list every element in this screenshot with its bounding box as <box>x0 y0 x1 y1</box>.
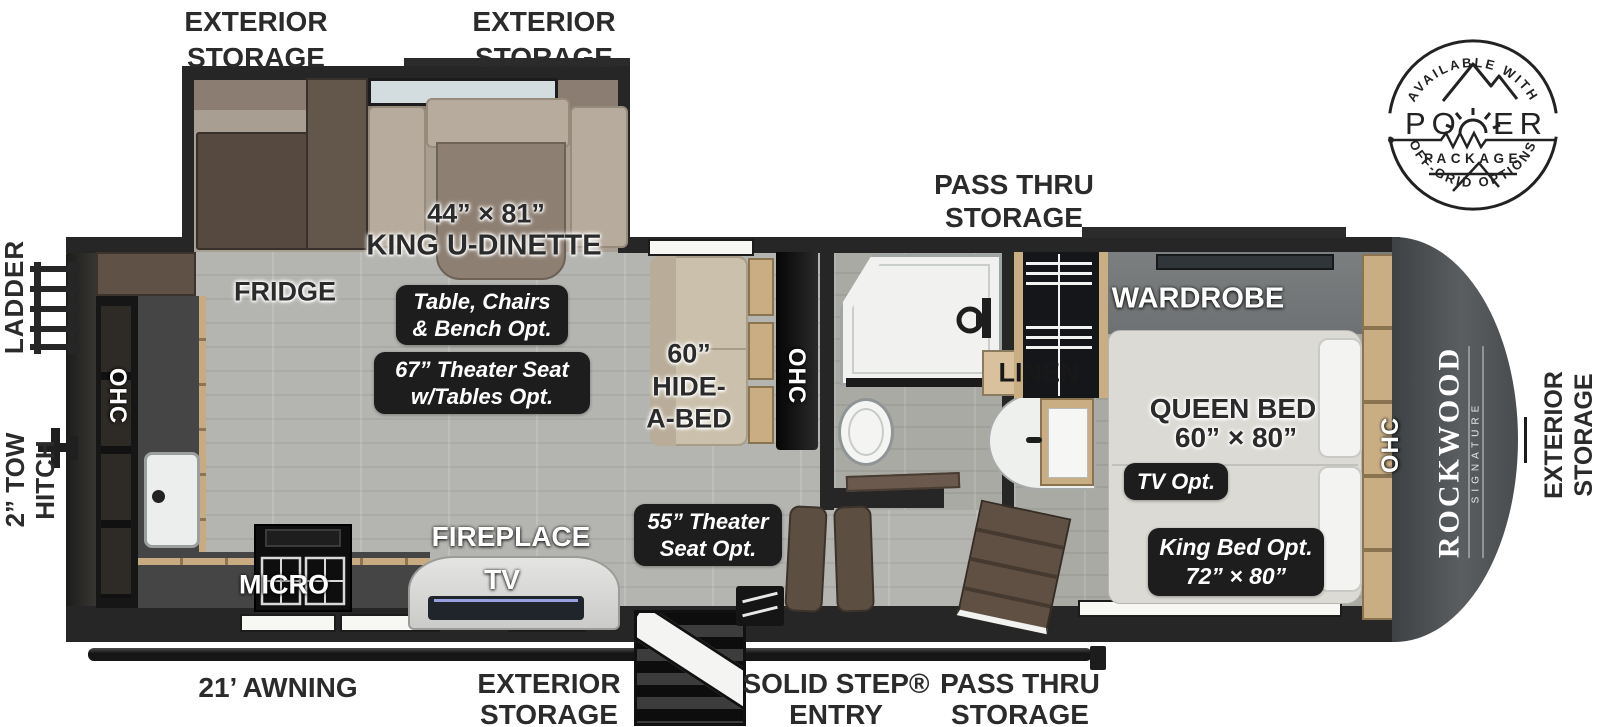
dinette-seat-right <box>570 106 628 248</box>
awning-label: 21’ AWNING <box>198 672 357 704</box>
fridge-cabinet <box>196 132 308 250</box>
wardrobe-rod-5 <box>1026 336 1092 339</box>
pillow-2 <box>1318 466 1362 592</box>
badge-line: & Bench Opt. <box>396 315 568 343</box>
badge-word-suffix: ER <box>1493 106 1548 141</box>
label-line: EXTERIOR <box>477 668 620 699</box>
sofa-end-cabinet-1 <box>748 258 774 316</box>
micro-label: MICRO <box>239 570 329 601</box>
shower-head-icon <box>952 296 996 348</box>
label-line: PASS THRU <box>934 168 1094 201</box>
top-wall-left <box>66 237 196 253</box>
option-badge-theater-55: 55” Theater Seat Opt. <box>634 504 782 566</box>
wardrobe-label: WARDROBE <box>1112 283 1284 316</box>
sofa-end-cabinet-2 <box>748 322 774 380</box>
window-sofa <box>648 239 754 256</box>
dinette-seat-left <box>368 106 426 248</box>
exterior-storage-top-left-label: EXTERIOR STORAGE <box>184 4 327 76</box>
label-line: STORAGE <box>934 201 1094 234</box>
label-line: STORAGE <box>472 40 615 76</box>
bedroom-skylight <box>1156 254 1334 270</box>
badge-arc-top: AVAILABLE WITH <box>1404 55 1542 105</box>
label-line: SOLID STEP® <box>742 668 929 699</box>
queen-bed-label-1: QUEEN BED <box>1150 393 1316 425</box>
badge-line: TV Opt. <box>1124 468 1228 496</box>
exterior-storage-bottom-label: EXTERIOR STORAGE <box>477 668 620 727</box>
label-line: EXTERIOR <box>184 4 327 40</box>
wardrobe-side-right <box>1099 252 1108 398</box>
front-cap-brand: ROCKWOOD SIGNATURE <box>1433 346 1484 558</box>
faucet-icon <box>152 490 165 503</box>
bed-slide-flange <box>1082 227 1346 238</box>
interior-entry-step <box>736 586 784 626</box>
badge-line: 72” × 80” <box>1148 562 1324 591</box>
brand-name: ROCKWOOD <box>1433 346 1467 558</box>
label-line: STORAGE <box>940 699 1100 727</box>
chair-2 <box>833 505 875 612</box>
badge-line: w/Tables Opt. <box>374 383 590 411</box>
badge-package-word: PACKAGE <box>1424 151 1522 166</box>
wardrobe-rod-4 <box>1026 326 1092 329</box>
ohc-bedroom-label: OHC <box>1377 417 1405 473</box>
bath-wall-left <box>820 252 834 510</box>
chair-1 <box>784 505 827 613</box>
kitchen-corner-cabinet <box>96 252 196 296</box>
label-line: ENTRY <box>742 699 929 727</box>
pantry-cabinet <box>306 78 368 250</box>
hide-a-bed-label-2: HIDE- <box>652 371 726 402</box>
cap-storage-door-mark <box>1524 417 1527 463</box>
badge-word-prefix: PO <box>1405 106 1462 141</box>
dinette-slide-wall-left <box>182 66 194 252</box>
label-line: PASS THRU <box>940 668 1100 699</box>
option-badge-tv: TV Opt. <box>1124 463 1228 500</box>
exterior-storage-right-label: EXTERIOR STORAGE <box>1539 371 1599 499</box>
dinette-name-label: KING U-DINETTE <box>366 229 601 262</box>
window-kitchen-1 <box>240 614 336 632</box>
vanity-faucet-icon <box>1026 437 1042 443</box>
ohc-kitchen-label: OHC <box>103 368 131 424</box>
badge-line: Table, Chairs <box>396 288 568 316</box>
label-line: HITCH <box>31 433 61 528</box>
entry-steps-icon <box>634 610 746 726</box>
hide-a-bed-label-3: A-BED <box>646 403 732 434</box>
badge-line: 67” Theater Seat <box>374 356 590 384</box>
dinette-size-label: 44” × 81” <box>427 198 545 229</box>
wardrobe-rod-2 <box>1026 272 1092 275</box>
shower-door <box>846 378 986 387</box>
vanity-basin <box>1048 408 1088 478</box>
ladder-label: LADDER <box>0 240 30 354</box>
label-line: STORAGE <box>184 40 327 76</box>
option-badge-table-chairs: Table, Chairs & Bench Opt. <box>396 285 568 345</box>
wardrobe-rod-3 <box>1026 282 1092 285</box>
hide-a-bed-label-1: 60” <box>667 338 711 369</box>
pass-thru-storage-top-label: PASS THRU STORAGE <box>934 168 1094 234</box>
wardrobe-rod-1 <box>1026 262 1092 265</box>
pillow-1 <box>1318 338 1362 458</box>
queen-bed-label-2: 60” × 80” <box>1175 422 1297 454</box>
awning-bracket <box>1090 646 1106 670</box>
awning-bar <box>88 648 1092 661</box>
power-package-badge: AVAILABLE WITH OFF-GRID OPTIONS PO ER PA… <box>1385 37 1561 213</box>
ladder-icon <box>26 260 84 356</box>
badge-line: 55” Theater <box>634 508 782 536</box>
option-badge-theater-67: 67” Theater Seat w/Tables Opt. <box>374 352 590 414</box>
badge-line: King Bed Opt. <box>1148 533 1324 562</box>
floorplan-canvas: AVAILABLE WITH OFF-GRID OPTIONS PO ER PA… <box>0 0 1600 727</box>
pass-thru-storage-bottom-label: PASS THRU STORAGE <box>940 668 1100 727</box>
badge-line: Seat Opt. <box>634 535 782 563</box>
kitchen-ohc-doors <box>101 306 131 598</box>
tv-accent-light <box>434 599 578 602</box>
brand-series: SIGNATURE <box>1469 346 1484 558</box>
exterior-storage-top-mid-label: EXTERIOR STORAGE <box>472 4 615 76</box>
label-line: EXTERIOR <box>1539 371 1569 499</box>
label-line: STORAGE <box>1569 371 1599 499</box>
sofa-end-cabinet-3 <box>748 386 774 444</box>
wardrobe-rod-6 <box>1026 346 1092 349</box>
tv-label: TV <box>484 564 520 596</box>
fireplace-label: FIREPLACE <box>432 521 591 553</box>
ohc-sofa-label: OHC <box>782 348 810 404</box>
tow-hitch-label: 2” TOW HITCH <box>1 433 61 528</box>
solid-step-entry-label: SOLID STEP® ENTRY <box>742 668 929 727</box>
svg-text:AVAILABLE WITH: AVAILABLE WITH <box>1404 55 1542 105</box>
label-line: EXTERIOR <box>472 4 615 40</box>
dinette-seat-back <box>426 98 570 148</box>
option-badge-king-bed: King Bed Opt. 72” × 80” <box>1148 528 1324 596</box>
fridge-label: FRIDGE <box>234 276 336 307</box>
toilet-seat <box>848 408 884 456</box>
label-line: 2” TOW <box>1 433 31 528</box>
linen-label: LINEN <box>999 357 1080 388</box>
label-line: STORAGE <box>477 699 620 727</box>
